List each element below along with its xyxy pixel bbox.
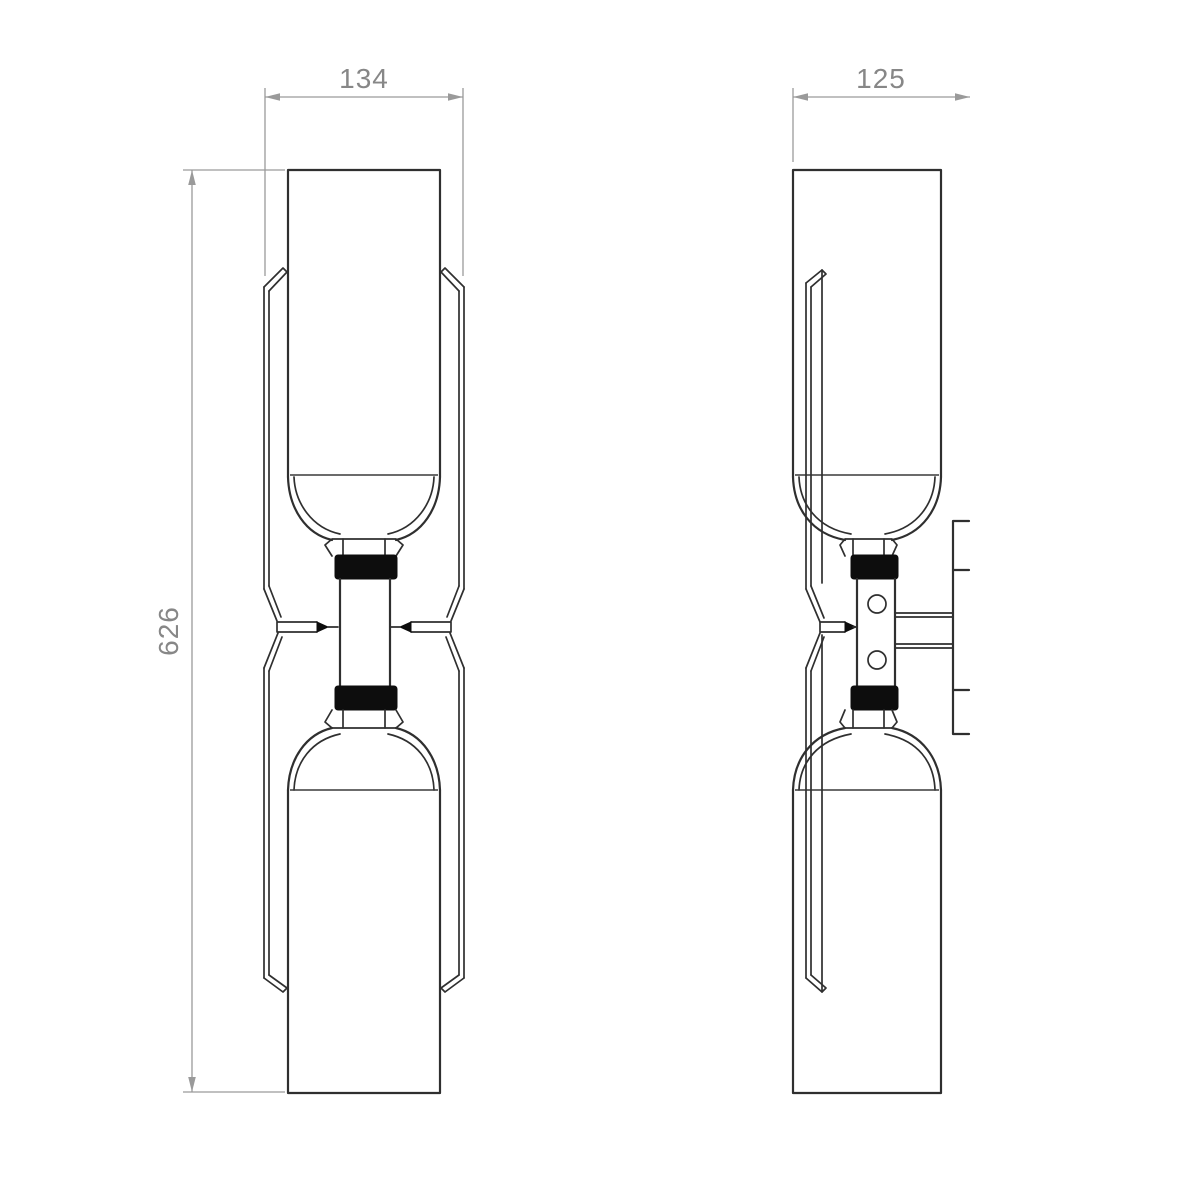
front-upper-band — [335, 555, 397, 579]
side-upper-glass — [793, 170, 941, 540]
side-screw-lower — [868, 651, 886, 669]
front-left-fin-tip — [317, 622, 328, 632]
side-upper-socket — [840, 539, 897, 556]
front-width-dimension-label: 134 — [339, 63, 389, 94]
front-lower-socket — [325, 710, 403, 728]
side-wall-arm — [895, 613, 953, 648]
front-stem — [340, 579, 390, 686]
side-depth-dimension: 125 — [793, 63, 970, 162]
front-width-arrow-left — [265, 93, 280, 101]
side-lower-glass — [793, 728, 941, 1093]
front-right-fin-tip — [400, 622, 411, 632]
front-height-dimension-label: 626 — [153, 606, 184, 656]
side-fin — [806, 270, 857, 992]
side-body — [857, 579, 895, 686]
front-width-arrow-right — [448, 93, 463, 101]
side-depth-arrow-right — [955, 93, 970, 101]
front-height-arrow-top — [188, 170, 196, 185]
front-lower-glass — [288, 728, 440, 1093]
side-lower-band — [851, 686, 898, 710]
side-upper-band — [851, 555, 898, 579]
drawing-canvas: 134 626 125 — [0, 0, 1200, 1200]
side-screw-upper — [868, 595, 886, 613]
front-height-dimension: 626 — [153, 170, 285, 1092]
dimensions: 134 626 125 — [153, 63, 970, 1092]
front-upper-glass — [288, 170, 440, 540]
front-lower-band — [335, 686, 397, 710]
front-left-fin — [264, 268, 338, 992]
side-depth-arrow-left — [793, 93, 808, 101]
side-depth-dimension-label: 125 — [856, 63, 906, 94]
front-view — [264, 170, 464, 1093]
technical-drawing-wall-sconce: 134 626 125 — [0, 0, 1200, 1200]
front-upper-socket — [325, 539, 403, 556]
front-width-extension-lines — [265, 88, 463, 276]
side-view — [793, 170, 969, 1093]
side-lower-socket — [840, 710, 897, 728]
side-wall-plate — [953, 521, 969, 734]
front-height-arrow-bottom — [188, 1077, 196, 1092]
front-right-fin — [390, 268, 464, 992]
